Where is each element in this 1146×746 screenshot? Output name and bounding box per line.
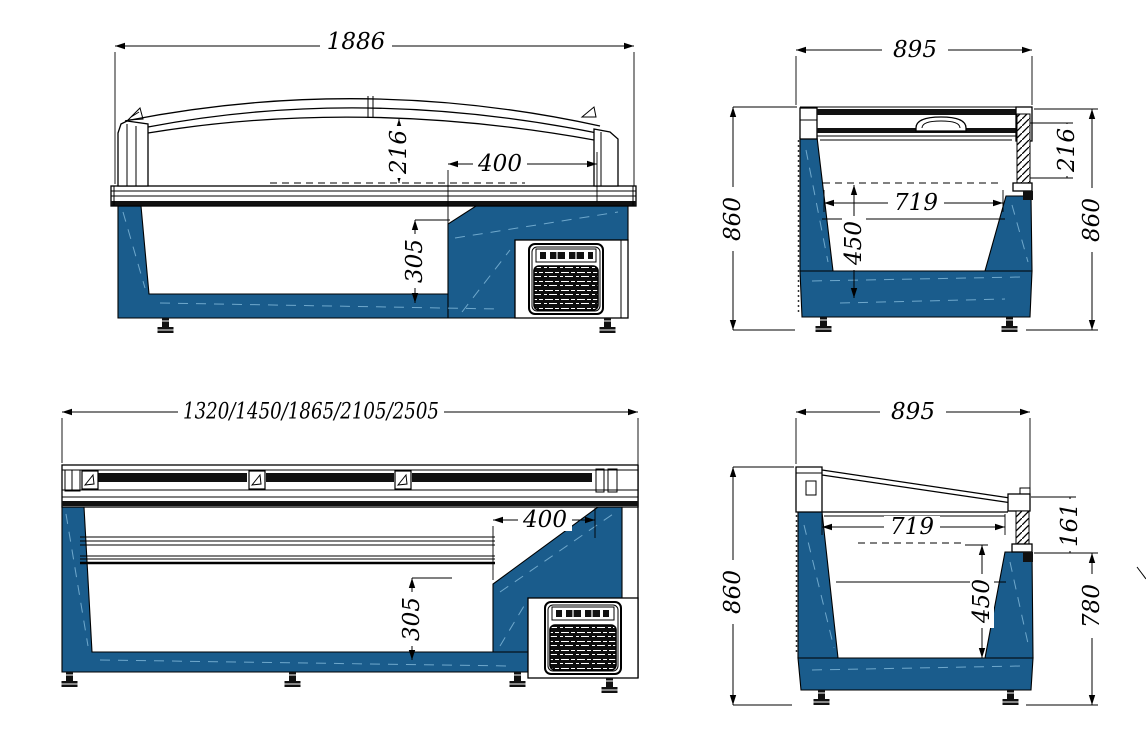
front-rail-block	[796, 467, 822, 512]
dim-text-780: 780	[1079, 584, 1105, 628]
dim-height-right: 780	[1026, 553, 1105, 705]
canopy-left-post	[118, 121, 148, 186]
dim-inner-width: 719	[822, 514, 1005, 540]
foot	[814, 690, 830, 705]
foot	[600, 318, 616, 333]
dim-lid-height: 216	[1030, 123, 1080, 178]
hatched-end-post	[1016, 511, 1029, 544]
dim-text-450: 450	[969, 579, 995, 624]
dim-text-719: 719	[890, 514, 934, 540]
machine-compartment	[515, 240, 628, 318]
dim-text-216: 216	[386, 130, 412, 175]
glass-end-cap	[1008, 494, 1030, 511]
compressor-grille	[534, 266, 598, 310]
hatched-end-post	[1017, 114, 1030, 183]
lid-lock	[395, 471, 411, 489]
lid-latch-right	[582, 107, 596, 117]
flat-lid-assembly	[800, 107, 1033, 200]
dim-text-216-side: 216	[1054, 128, 1080, 173]
adjustable-feet	[816, 317, 1018, 332]
adjustable-feet	[158, 318, 616, 333]
dim-width-options: 1320/1450/1865/2105/2505	[62, 400, 638, 466]
cropped-annotation-tick	[1137, 567, 1146, 579]
dim-height-left: 860	[720, 467, 794, 705]
view-side-curved-glass: 895 860 161 780	[720, 399, 1146, 705]
dim-machine-height: 305	[399, 578, 452, 660]
dim-text-400: 400	[477, 151, 522, 177]
foot	[285, 672, 301, 687]
dim-text-895: 895	[893, 37, 937, 63]
dim-text-161: 161	[1057, 503, 1083, 547]
dim-text-719: 719	[894, 190, 938, 216]
dim-text-860-right: 860	[1079, 198, 1105, 242]
technical-drawing-canvas: 1886 216 400 305	[0, 0, 1146, 746]
dim-text-450: 450	[841, 221, 867, 266]
front-panel-grooves	[80, 537, 495, 563]
hinge-connector	[1023, 191, 1033, 200]
worktop-band	[111, 186, 636, 206]
dim-text-1886: 1886	[327, 29, 386, 55]
foot	[602, 678, 618, 693]
foot	[1003, 690, 1019, 705]
adjustable-feet	[814, 690, 1019, 705]
foot	[62, 672, 78, 687]
dim-text-width-options: 1320/1450/1865/2105/2505	[183, 400, 439, 425]
dim-text-305: 305	[402, 239, 428, 283]
view-front-flat-glass: 1320/1450/1865/2105/2505 400 305	[62, 400, 639, 694]
dim-text-305: 305	[399, 597, 425, 641]
lid-lock	[249, 471, 265, 489]
dim-depth: 895	[796, 37, 1032, 105]
body-base-blue	[800, 137, 1032, 317]
freezer-orthographic-drawing: 1886 216 400 305	[0, 0, 1146, 746]
foot	[816, 317, 832, 332]
dim-depth: 895	[796, 399, 1030, 492]
canopy-right-post	[594, 129, 618, 186]
dim-glass-height: 216	[386, 119, 412, 183]
foot	[1002, 317, 1018, 332]
dim-text-895: 895	[891, 399, 935, 425]
machine-compartment	[528, 598, 638, 678]
dim-text-860-left: 860	[720, 197, 746, 241]
sliding-lid-frame	[62, 465, 638, 507]
dim-inner-width: 719	[824, 190, 1003, 216]
hinge-connector	[1023, 552, 1033, 562]
curved-glass-canopy	[118, 96, 618, 186]
view-front-curved-glass: 1886 216 400 305	[111, 29, 636, 333]
dim-lid-height: 161	[1031, 497, 1083, 553]
dim-text-400: 400	[522, 507, 567, 533]
view-side-flat-glass: 895 860 860 216	[720, 37, 1105, 332]
foot	[158, 318, 174, 333]
foot	[510, 672, 526, 687]
compressor-grille	[550, 625, 616, 670]
dim-height-left: 860	[720, 107, 797, 330]
dim-machine-height: 305	[402, 220, 450, 303]
lid-lock	[82, 471, 98, 489]
dim-text-860: 860	[720, 570, 746, 614]
